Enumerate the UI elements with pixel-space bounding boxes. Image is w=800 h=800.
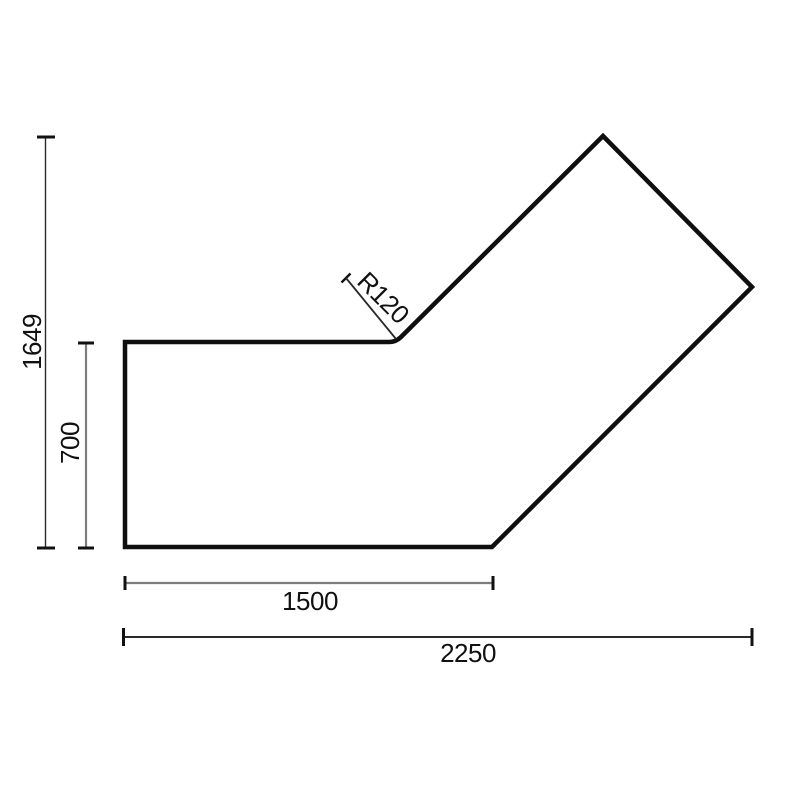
dim-left-depth-label: 700	[55, 422, 85, 464]
dim-total-width: 2250	[124, 628, 753, 668]
dim-total-height-label: 1649	[17, 314, 47, 370]
shape-outline	[125, 136, 752, 547]
dim-total-width-label: 2250	[440, 638, 496, 668]
dim-total-height: 1649	[17, 137, 55, 548]
drawing-canvas: 1649 700 1500 2250 R120	[0, 0, 800, 800]
dim-corner-radius: R120	[342, 266, 416, 339]
dimension-drawing: 1649 700 1500 2250 R120	[0, 0, 800, 800]
dim-bottom-width: 1500	[125, 576, 493, 616]
dim-bottom-width-label: 1500	[282, 586, 338, 616]
dim-left-depth: 700	[55, 343, 94, 548]
